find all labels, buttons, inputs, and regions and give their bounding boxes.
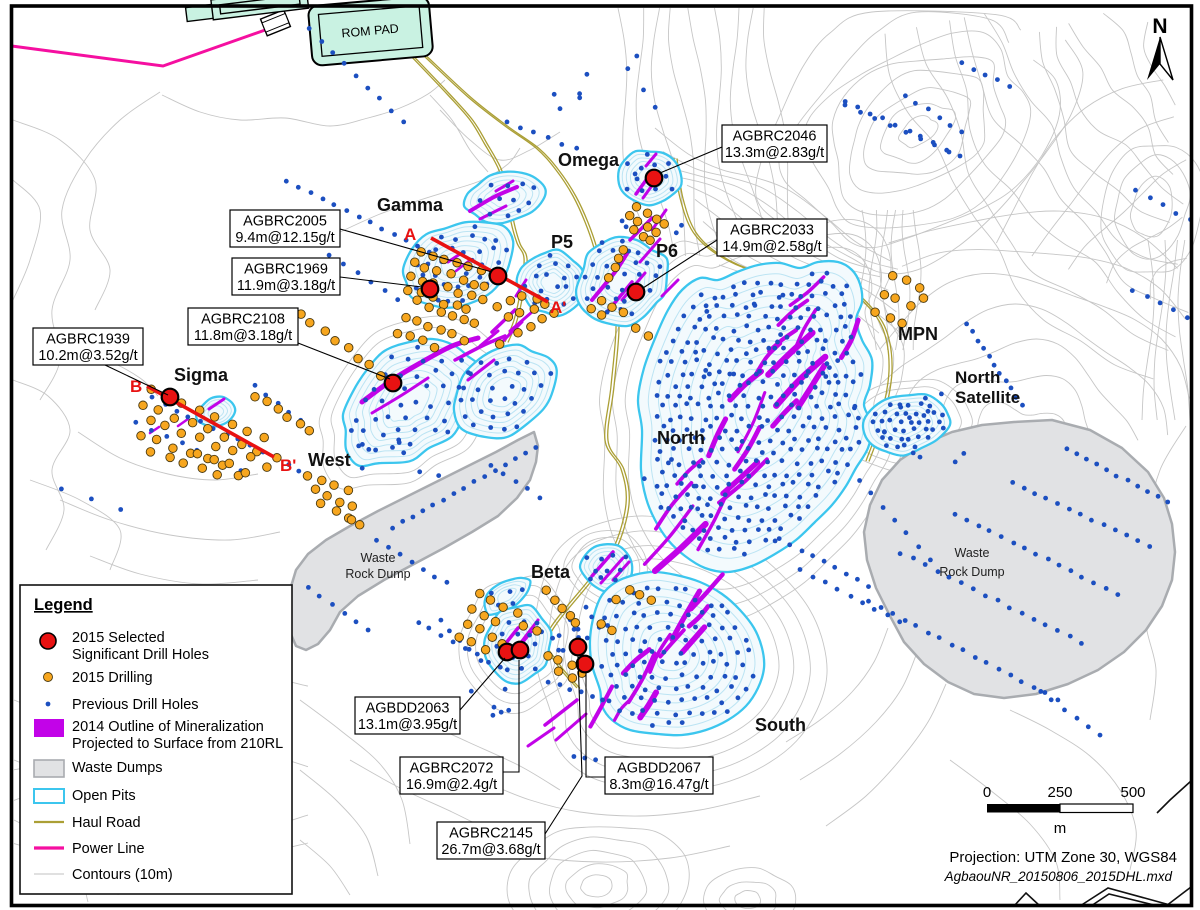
svg-text:13.3m@2.83g/t: 13.3m@2.83g/t <box>725 145 824 161</box>
svg-text:16.9m@2.4g/t: 16.9m@2.4g/t <box>406 777 497 793</box>
svg-text:2014 Outline of Mineralization: 2014 Outline of Mineralization <box>72 719 264 735</box>
svg-text:Power Line: Power Line <box>72 841 145 857</box>
svg-text:Previous Drill Holes: Previous Drill Holes <box>72 697 199 713</box>
svg-text:13.1m@3.95g/t: 13.1m@3.95g/t <box>358 717 457 733</box>
svg-text:Waste: Waste <box>955 546 990 560</box>
svg-text:250: 250 <box>1047 784 1072 801</box>
svg-text:Omega: Omega <box>558 150 620 170</box>
svg-text:Projected to Surface from 210R: Projected to Surface from 210RL <box>72 736 283 752</box>
svg-text:Open Pits: Open Pits <box>72 788 136 804</box>
svg-text:MPN: MPN <box>898 324 938 344</box>
svg-text:P5: P5 <box>551 232 573 252</box>
svg-text:North: North <box>657 428 705 448</box>
svg-text:A': A' <box>550 298 566 317</box>
svg-text:AGBRC2005: AGBRC2005 <box>243 214 327 230</box>
svg-text:2015 Selected: 2015 Selected <box>72 630 165 646</box>
svg-text:AGBRC2033: AGBRC2033 <box>730 223 814 239</box>
svg-text:B': B' <box>280 456 296 475</box>
svg-text:Sigma: Sigma <box>174 365 229 385</box>
svg-text:AGBRC1969: AGBRC1969 <box>244 262 328 278</box>
svg-text:AGBRC2145: AGBRC2145 <box>449 826 533 842</box>
svg-text:0: 0 <box>983 784 991 801</box>
svg-text:West: West <box>308 450 351 470</box>
svg-text:11.9m@3.18g/t: 11.9m@3.18g/t <box>237 278 335 294</box>
svg-text:AGBRC2046: AGBRC2046 <box>733 129 817 145</box>
svg-text:10.2m@3.52g/t: 10.2m@3.52g/t <box>38 348 137 364</box>
svg-text:Legend: Legend <box>34 596 93 614</box>
svg-text:Beta: Beta <box>531 562 571 582</box>
svg-text:AgbaouNR_20150806_2015DHL.mxd: AgbaouNR_20150806_2015DHL.mxd <box>944 869 1173 884</box>
svg-text:North: North <box>955 368 1000 387</box>
svg-text:14.9m@2.58g/t: 14.9m@2.58g/t <box>722 239 821 255</box>
svg-text:Projection: UTM Zone 30, WGS84: Projection: UTM Zone 30, WGS84 <box>949 849 1177 866</box>
svg-text:AGBDD2063: AGBDD2063 <box>366 701 450 717</box>
svg-text:AGBRC1939: AGBRC1939 <box>46 332 130 348</box>
svg-text:Rock Dump: Rock Dump <box>345 567 410 581</box>
svg-text:m: m <box>1054 820 1067 837</box>
svg-text:Haul Road: Haul Road <box>72 815 141 831</box>
svg-text:N: N <box>1152 15 1167 38</box>
svg-text:8.3m@16.47g/t: 8.3m@16.47g/t <box>609 777 708 793</box>
svg-text:AGBRC2072: AGBRC2072 <box>410 761 494 777</box>
svg-text:Waste Dumps: Waste Dumps <box>72 760 163 776</box>
svg-text:11.8m@3.18g/t: 11.8m@3.18g/t <box>194 328 292 344</box>
svg-text:AGBDD2067: AGBDD2067 <box>617 761 701 777</box>
svg-text:Contours (10m): Contours (10m) <box>72 867 173 883</box>
svg-text:South: South <box>755 715 806 735</box>
svg-text:A: A <box>404 225 416 244</box>
svg-text:9.4m@12.15g/t: 9.4m@12.15g/t <box>235 230 334 246</box>
svg-text:P6: P6 <box>656 241 678 261</box>
svg-text:Significant Drill Holes: Significant Drill Holes <box>72 647 209 663</box>
svg-text:500: 500 <box>1120 784 1145 801</box>
svg-text:2015 Drilling: 2015 Drilling <box>72 670 153 686</box>
svg-text:Gamma: Gamma <box>377 195 444 215</box>
svg-text:AGBRC2108: AGBRC2108 <box>201 312 285 328</box>
svg-text:Satellite: Satellite <box>955 388 1020 407</box>
svg-text:Waste: Waste <box>361 551 396 565</box>
svg-text:26.7m@3.68g/t: 26.7m@3.68g/t <box>441 842 540 858</box>
svg-text:Rock Dump: Rock Dump <box>939 565 1004 579</box>
